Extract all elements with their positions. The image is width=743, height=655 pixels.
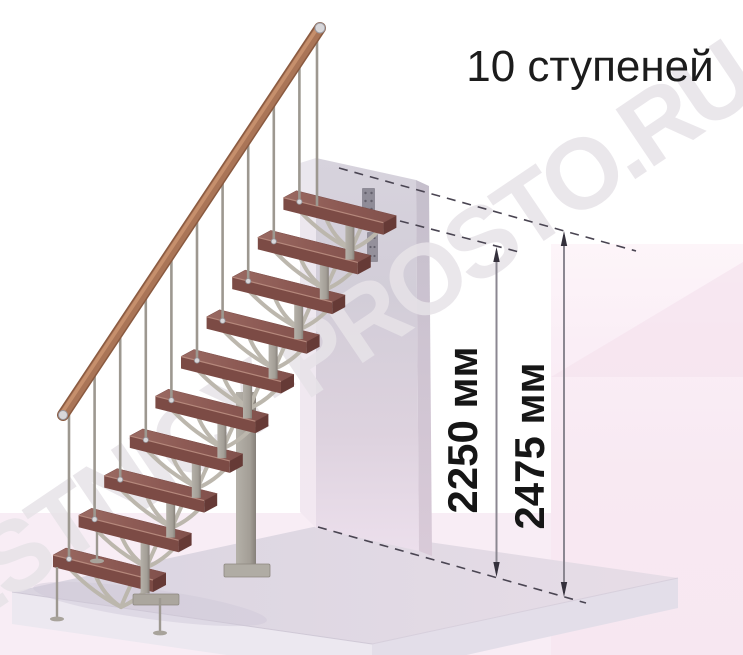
leg-foot (153, 631, 167, 636)
diagram-title: 10 ступеней (466, 42, 713, 91)
baluster-mount (169, 398, 174, 403)
staircase-diagram-page: LESTNICY-PROSTO.RU 2250 мм 2475 мм 10 ст… (0, 0, 743, 655)
baluster-mount (271, 239, 276, 244)
central-post-base-plate (224, 564, 270, 577)
baluster-mount (220, 318, 225, 323)
baluster-mount (297, 199, 302, 204)
baluster-mount (143, 437, 148, 442)
leg-foot (90, 559, 104, 564)
handrail-top-cap (315, 23, 325, 33)
staircase-diagram: LESTNICY-PROSTO.RU 2250 мм 2475 мм 10 ст… (0, 0, 743, 655)
baluster-mount (194, 358, 199, 363)
spine-base-plate (133, 594, 179, 605)
leg-foot (50, 617, 64, 622)
dimension-label-2250: 2250 мм (439, 346, 486, 513)
baluster-mount (118, 477, 123, 482)
baluster-mount (66, 556, 71, 561)
handrail-bottom-cap (59, 411, 68, 420)
baluster-mount (92, 517, 97, 522)
dimension-label-2475: 2475 мм (506, 362, 553, 529)
baluster-mount (246, 279, 251, 284)
